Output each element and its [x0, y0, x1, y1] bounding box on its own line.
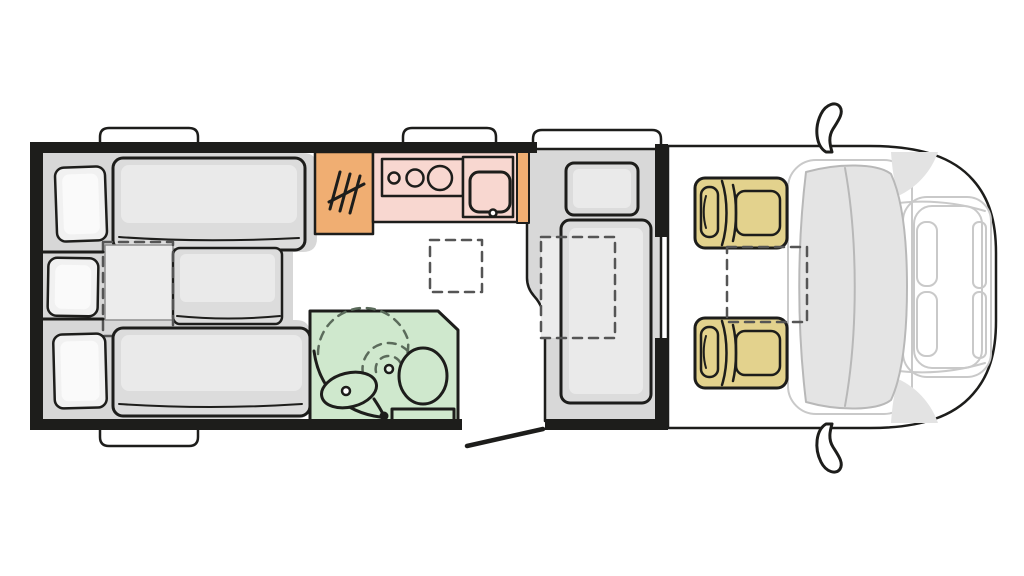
cab-seat-driver	[695, 178, 787, 248]
pillow-bottom	[53, 333, 107, 408]
roof-vent-dashed	[430, 240, 482, 292]
rear-bedroom	[43, 153, 317, 419]
wall-cab-bulkhead-bottom	[655, 338, 668, 430]
toilet-bowl	[399, 348, 447, 404]
kitchen	[315, 152, 529, 292]
floorplan-canvas	[0, 0, 1024, 576]
rear-bed-middle-highlight	[180, 254, 275, 302]
counter-end-trim	[517, 152, 529, 223]
shower-pivot	[385, 365, 393, 373]
windshield	[799, 165, 907, 408]
bed-extension-filler	[105, 245, 173, 320]
floorplan-page	[0, 0, 1024, 576]
side-mirror-bottom	[817, 424, 841, 472]
wall-rear	[30, 142, 43, 430]
pillow-middle	[47, 258, 98, 317]
burner-small	[389, 173, 400, 184]
cab-area	[668, 104, 996, 472]
entry-door-open	[467, 429, 543, 446]
kitchen-sink-drain	[490, 210, 497, 217]
pillow-middle-highlight	[55, 265, 92, 310]
wall-bottom-right	[545, 419, 668, 430]
burner-large	[428, 166, 452, 190]
dinette-backrest-highlight	[573, 169, 631, 208]
dinette-seat-highlight	[569, 228, 643, 394]
dinette	[527, 149, 661, 421]
kitchen-sink-basin	[470, 172, 510, 212]
burner-medium	[407, 170, 424, 187]
wall-bottom-left	[30, 419, 462, 430]
washroom	[310, 308, 458, 422]
wall-cab-bulkhead-top	[655, 144, 668, 237]
rear-bed-bottom-highlight	[121, 335, 302, 391]
washroom-sink-drain	[342, 387, 350, 395]
wall-top	[30, 142, 537, 153]
dinette-table-fill	[541, 237, 561, 338]
cab-seat-passenger	[695, 318, 787, 388]
pillow-bottom-highlight	[60, 341, 100, 402]
pillow-top-highlight	[62, 173, 100, 234]
rear-bed-top-highlight	[121, 165, 297, 223]
pillow-top	[55, 166, 108, 242]
